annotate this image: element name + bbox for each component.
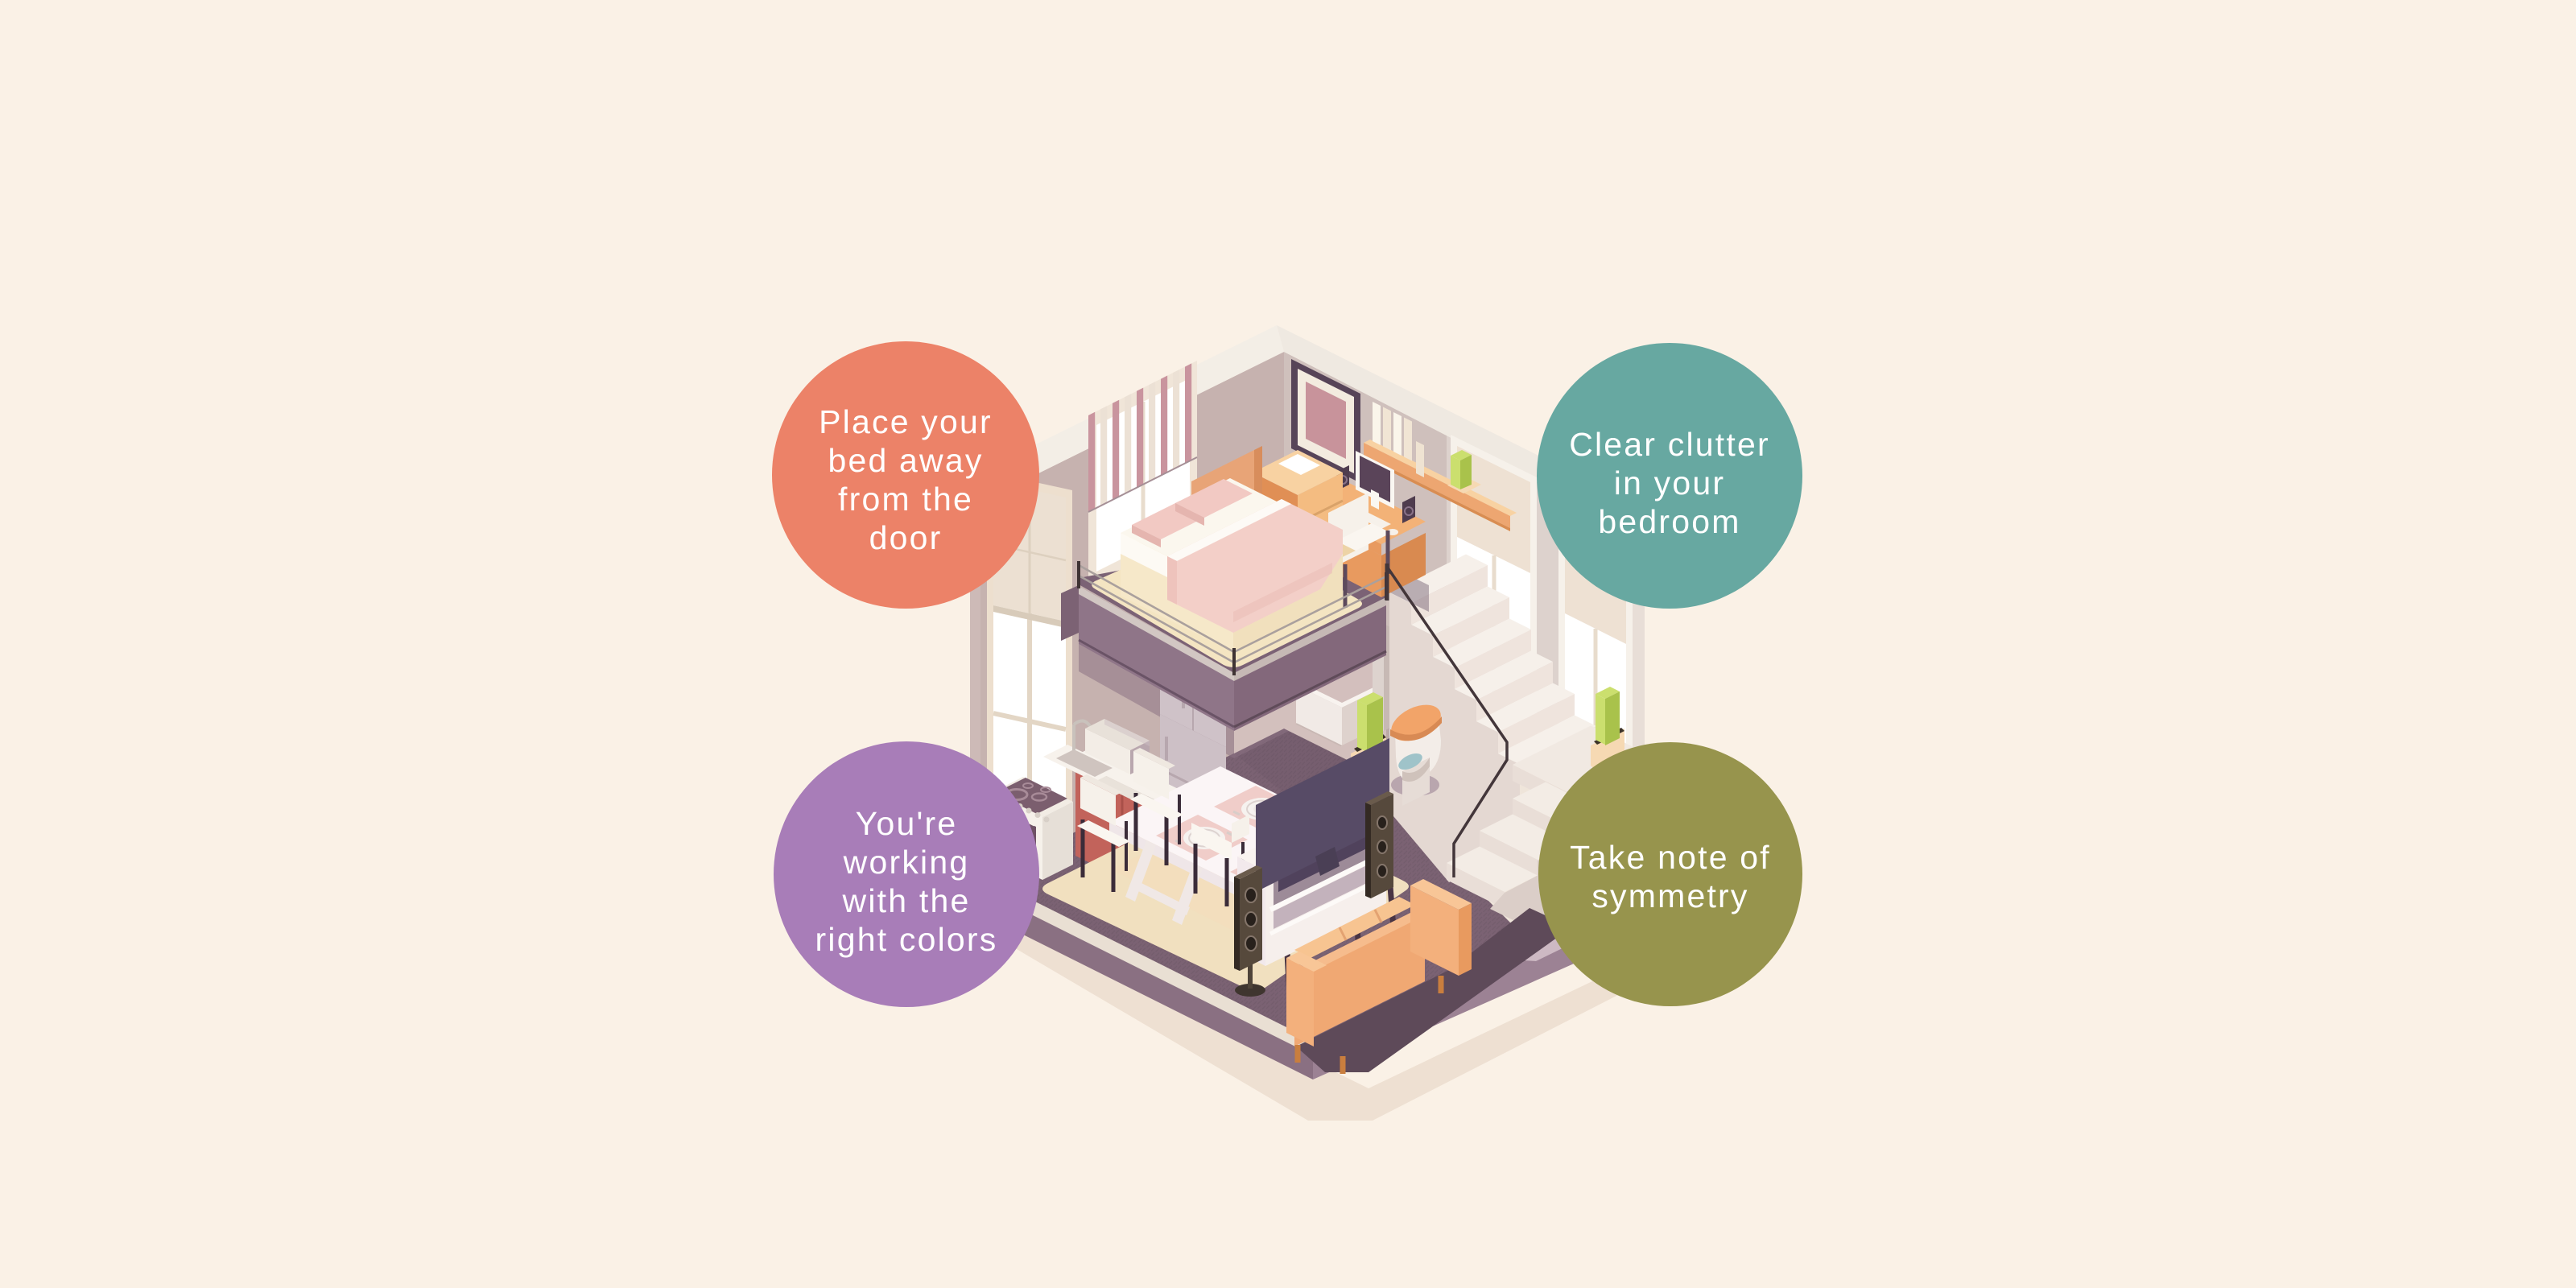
svg-text:Take note of: Take note of: [1570, 839, 1771, 876]
svg-text:door: door: [869, 519, 943, 556]
svg-text:right colors: right colors: [815, 921, 998, 958]
svg-text:Place your: Place your: [819, 403, 993, 440]
svg-text:in your: in your: [1614, 464, 1725, 502]
svg-text:bed away: bed away: [828, 442, 983, 479]
svg-text:Clear clutter: Clear clutter: [1569, 426, 1770, 463]
svg-text:with the: with the: [842, 882, 971, 919]
svg-text:symmetry: symmetry: [1591, 877, 1748, 914]
svg-text:working: working: [843, 844, 970, 881]
svg-text:bedroom: bedroom: [1598, 503, 1740, 540]
svg-text:You're: You're: [856, 805, 958, 842]
svg-text:from the: from the: [838, 481, 973, 518]
